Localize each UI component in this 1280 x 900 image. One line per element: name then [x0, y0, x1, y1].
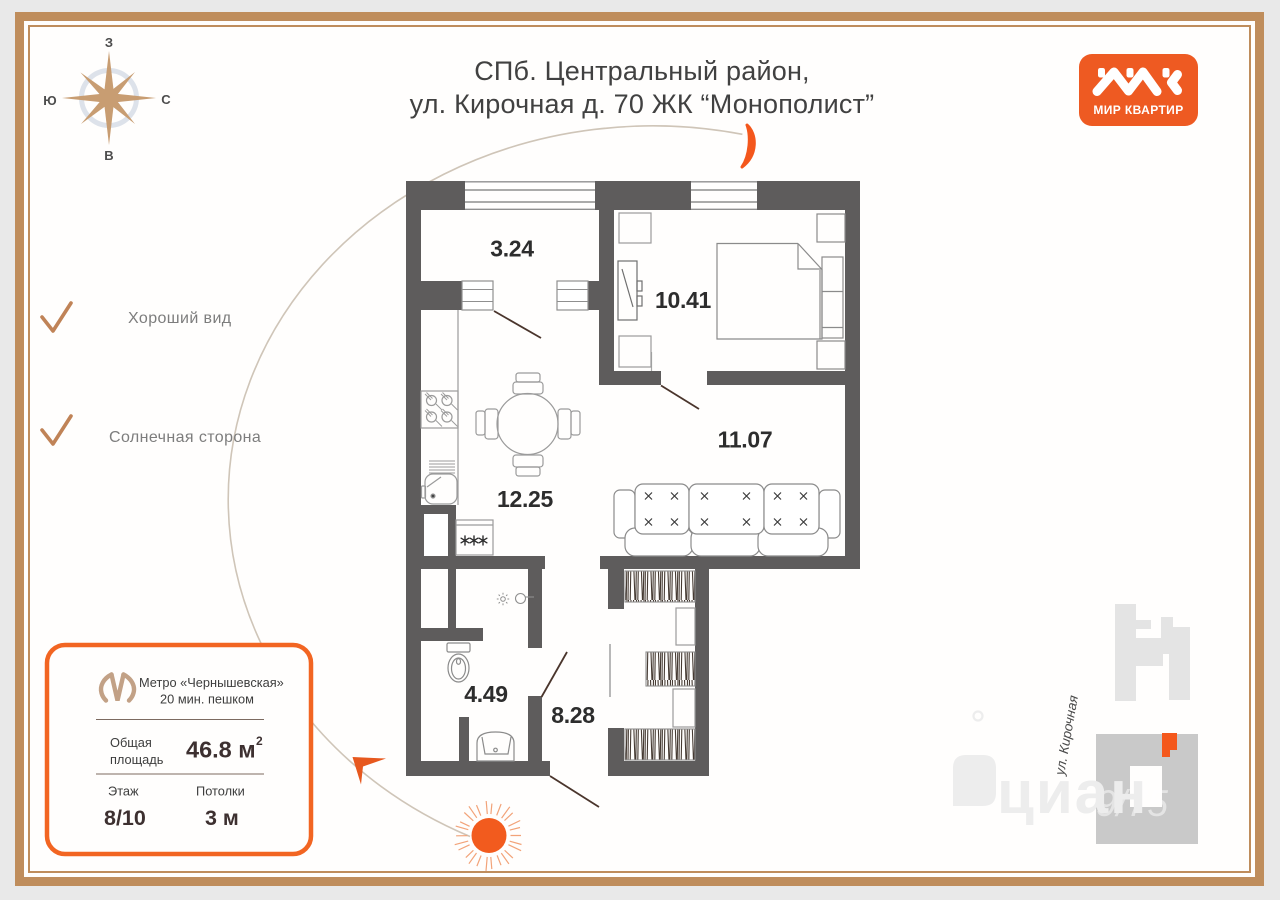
svg-text:Общая: Общая [110, 735, 152, 750]
svg-text:Потолки: Потолки [196, 784, 245, 799]
svg-text:11.07: 11.07 [718, 427, 773, 453]
svg-text:циан: циан [997, 759, 1148, 826]
svg-text:Этаж: Этаж [108, 784, 139, 799]
svg-text:8.28: 8.28 [551, 702, 595, 728]
svg-text:В: В [104, 148, 113, 163]
svg-text:10.41: 10.41 [655, 287, 712, 313]
svg-text:ул. Кирочная д. 70 ЖК “Монопо: ул. Кирочная д. 70 ЖК “Монополист” [410, 89, 875, 119]
svg-text:Солнечная сторона: Солнечная сторона [109, 429, 261, 446]
svg-text:Ю: Ю [43, 93, 56, 108]
svg-text:8/10: 8/10 [104, 806, 146, 830]
svg-text:2: 2 [256, 734, 263, 748]
svg-text:3.24: 3.24 [490, 236, 534, 262]
svg-text:46.8 м: 46.8 м [186, 737, 256, 763]
svg-text:4.49: 4.49 [464, 681, 508, 707]
svg-text:Хороший вид: Хороший вид [128, 310, 232, 327]
svg-text:Метро «Чернышевская»: Метро «Чернышевская» [139, 675, 284, 690]
svg-text:С: С [161, 92, 171, 107]
svg-text:площадь: площадь [110, 752, 164, 767]
svg-text:12.25: 12.25 [497, 486, 554, 512]
svg-text:3 м: 3 м [205, 806, 239, 830]
svg-text:МИР КВАРТИР: МИР КВАРТИР [1093, 103, 1183, 117]
svg-text:З: З [105, 35, 113, 50]
svg-text:20 мин. пешком: 20 мин. пешком [160, 692, 254, 707]
svg-text:СПб. Центральный район,: СПб. Центральный район, [474, 56, 810, 86]
